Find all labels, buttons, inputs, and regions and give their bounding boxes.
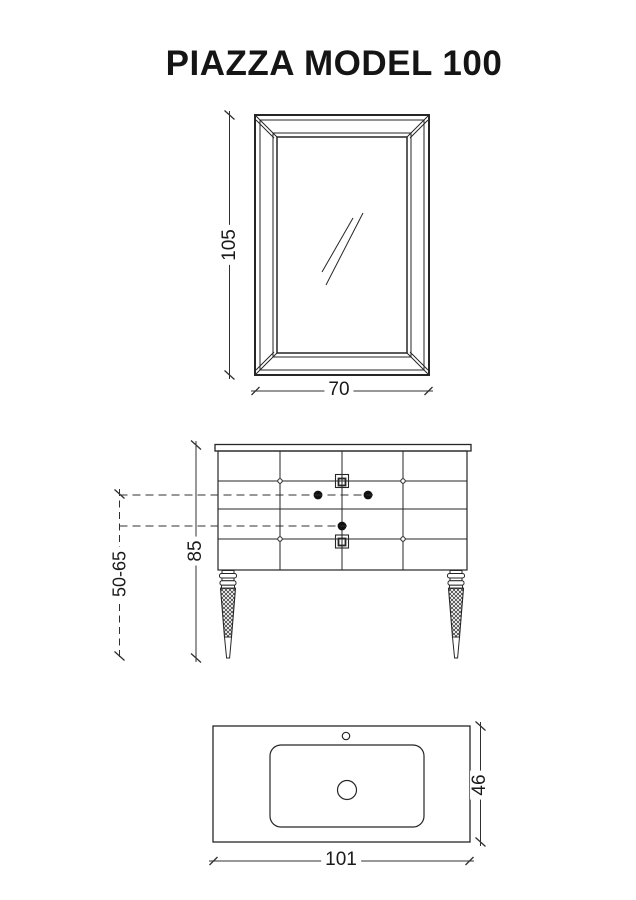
plumbing-connection-dots [314, 491, 373, 531]
left-leg [220, 571, 237, 659]
mirror-frame-miters [255, 115, 429, 375]
dim-label-mirror-width: 70 [324, 380, 353, 400]
mirror-frame-step1 [260, 120, 424, 370]
mirror-frame-step2 [273, 133, 411, 357]
mirror-reflection-lines [322, 213, 363, 285]
dim-label-mirror-height: 105 [220, 225, 240, 265]
basin-dimension-lines [209, 722, 486, 866]
basin-top-view [213, 726, 470, 842]
vanity-front-view [215, 445, 471, 659]
dim-label-supply-range: 50-65 [110, 547, 129, 601]
mirror-glass-edge [277, 137, 407, 353]
dim-label-basin-depth: 46 [470, 770, 490, 799]
right-leg [448, 571, 465, 659]
countertop-outline [213, 726, 470, 842]
drawing-canvas [0, 0, 636, 900]
basin-bowl-outline [270, 745, 424, 827]
technical-drawing-sheet: PIAZZA MODEL 100 [0, 0, 636, 900]
mirror-frame-outer [255, 115, 429, 375]
drain-hole [338, 781, 357, 800]
vanity-countertop-edge [215, 445, 471, 452]
vanity-panel-grid [218, 451, 467, 570]
mirror-front-view [255, 115, 429, 375]
dim-label-basin-width: 101 [321, 850, 361, 870]
faucet-hole [342, 732, 349, 739]
vanity-dimension-lines [115, 441, 374, 663]
dim-label-vanity-height: 85 [186, 536, 206, 565]
